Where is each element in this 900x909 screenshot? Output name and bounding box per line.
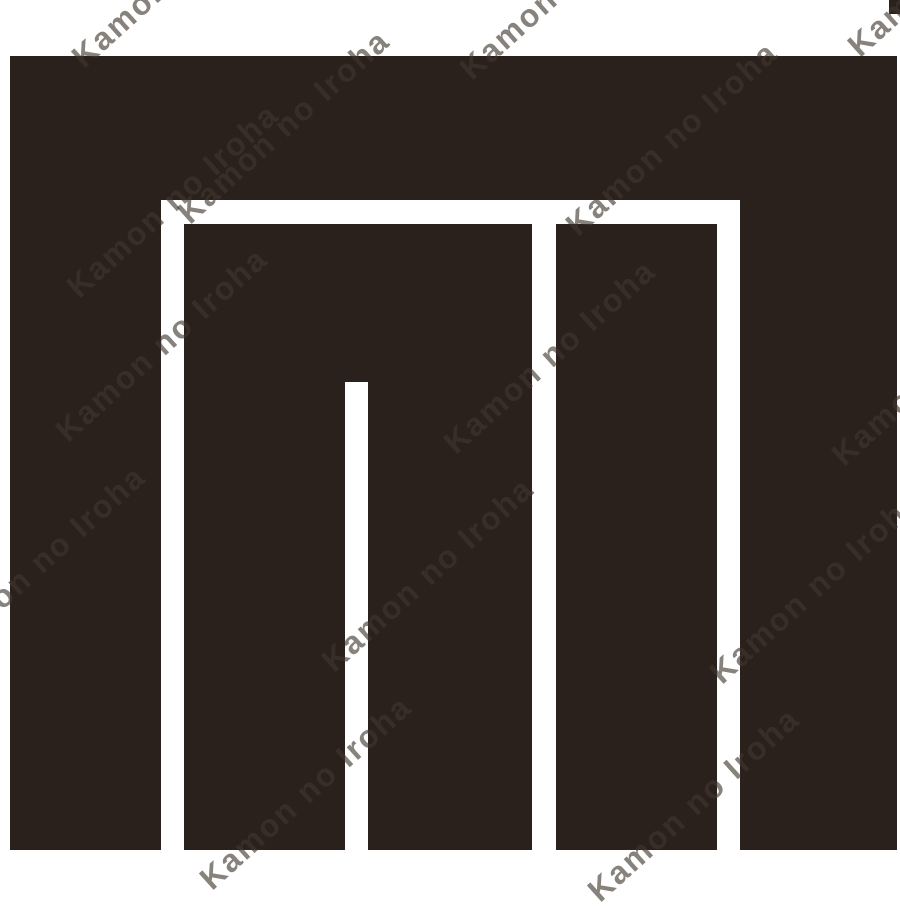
emblem-base <box>10 56 897 850</box>
corner-mark <box>889 0 900 14</box>
emblem-gap-vertical-right <box>717 200 740 850</box>
emblem-gap-vertical-midleft <box>345 382 368 850</box>
kamon-crest-image: Kamon no Iroha Kamon no Iroha Kamon no I… <box>0 0 900 900</box>
emblem-gap-vertical-midright <box>532 200 556 850</box>
emblem-gap-vertical-left <box>161 200 184 850</box>
emblem-gap-horizontal <box>161 200 740 224</box>
